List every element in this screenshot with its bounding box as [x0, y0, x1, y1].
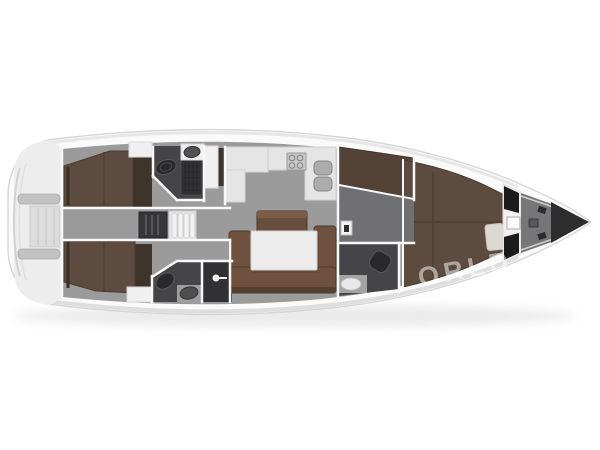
- aft-starboard-cabin-berth: [64, 241, 135, 293]
- step-treads: [172, 213, 195, 238]
- galley-cabinet: [225, 147, 268, 172]
- aft-port-cabinet: [129, 142, 152, 157]
- yacht-layout-svg: ORLD: [0, 0, 600, 450]
- aft-starboard-cabin-floor-strip: [135, 244, 152, 293]
- windlass: [529, 219, 538, 227]
- cockpit-seat-port: [18, 194, 60, 204]
- mid-cabin-panel-screen: [344, 225, 349, 232]
- stern-platform: [14, 140, 62, 305]
- sofa-bench-edge: [229, 287, 336, 293]
- galley-sink-2: [314, 177, 332, 191]
- aft-port-cabin-floor-strip: [133, 151, 152, 207]
- shower-head-icon: [213, 275, 220, 282]
- mid-head-sink: [341, 278, 361, 290]
- transom-door: [30, 206, 60, 247]
- aft-starboard-step: [127, 287, 152, 302]
- saloon-table: [251, 231, 317, 270]
- galley-side-counter: [225, 170, 245, 202]
- bow-hatch: [507, 217, 520, 229]
- yacht-floor-plan: ORLD: [0, 0, 600, 450]
- aft-starboard-shower: [203, 261, 232, 302]
- cockpit-seat-starboard: [18, 249, 60, 259]
- galley-sink-1: [314, 161, 332, 175]
- head-wardrobe: [204, 146, 218, 188]
- saloon-sideboard-top: [257, 211, 307, 218]
